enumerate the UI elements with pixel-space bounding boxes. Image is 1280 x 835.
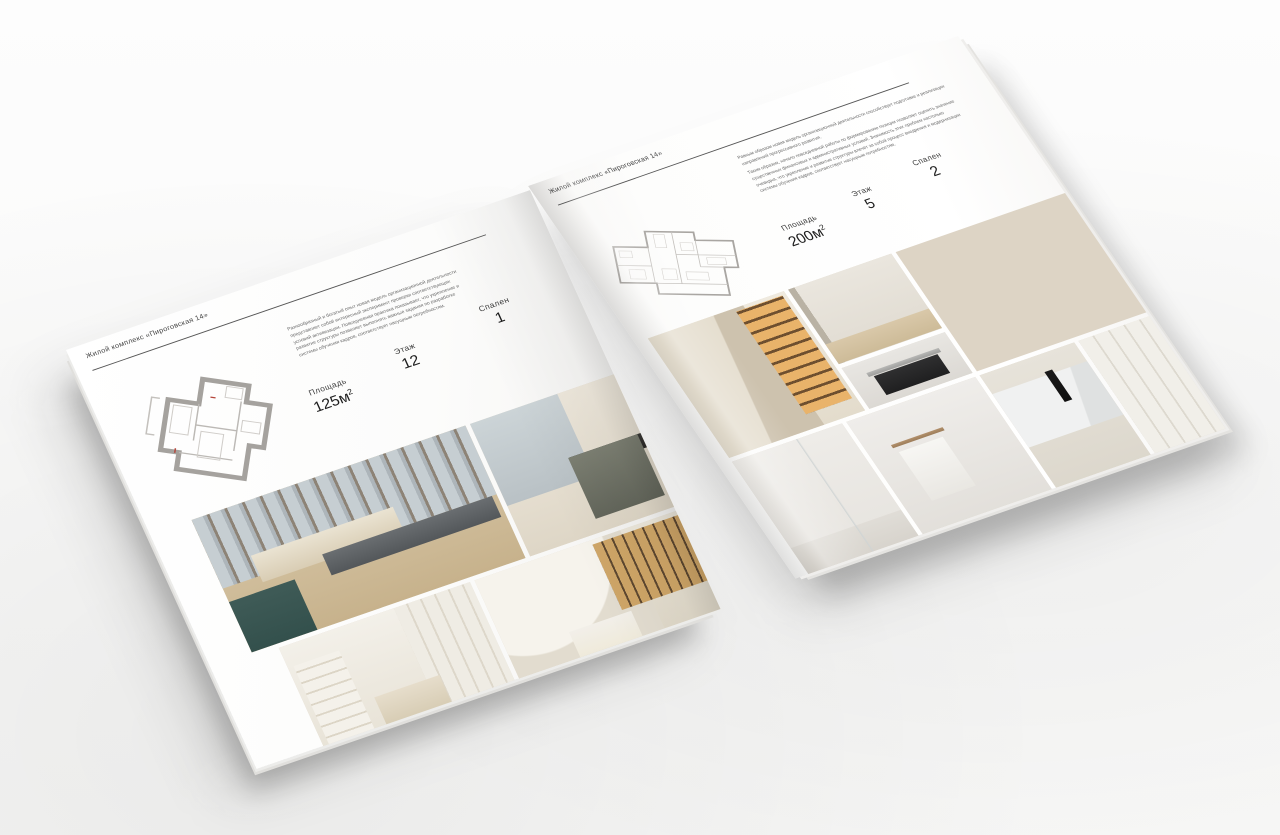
description-text: Разнообразный и богатый опыт новая модел… [286,268,473,360]
stat-floor: Этаж 5 [842,181,893,217]
stat-floor: Этаж 12 [384,338,433,377]
stat-bedrooms: Спален 2 [902,147,963,187]
photo-backdrop: Жилой комплекс «Пироговская 14» Разнообр… [0,0,1280,835]
stat-area: Площадь 125м2 [300,374,364,419]
stat-area: Площадь 200м2 [771,210,838,253]
stat-bedrooms: Спален 1 [468,292,528,335]
